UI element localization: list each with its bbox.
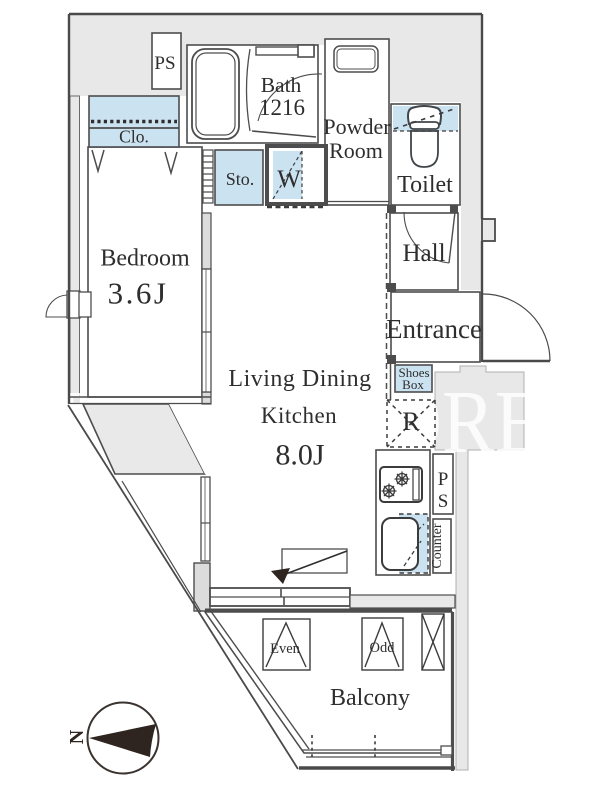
- svg-text:Sto.: Sto.: [226, 169, 255, 189]
- svg-text:3.6J: 3.6J: [108, 276, 169, 311]
- svg-text:R: R: [402, 407, 420, 436]
- svg-text:PS: PS: [154, 53, 175, 74]
- svg-text:Counter: Counter: [430, 523, 445, 568]
- svg-text:Bedroom: Bedroom: [100, 246, 190, 272]
- svg-text:8.0J: 8.0J: [275, 439, 325, 472]
- svg-text:Clo.: Clo.: [119, 127, 149, 147]
- svg-text:Living Dining: Living Dining: [228, 366, 371, 392]
- svg-text:Even: Even: [270, 641, 301, 657]
- svg-text:Balcony: Balcony: [330, 685, 410, 711]
- svg-text:P: P: [438, 469, 449, 490]
- svg-text:Toilet: Toilet: [397, 172, 453, 198]
- svg-text:Hall: Hall: [402, 240, 445, 267]
- svg-text:Bath: Bath: [261, 73, 302, 97]
- svg-text:S: S: [438, 491, 449, 512]
- svg-text:Powder: Powder: [323, 114, 391, 139]
- svg-text:Entrance: Entrance: [386, 314, 482, 344]
- svg-text:1216: 1216: [259, 95, 305, 120]
- svg-text:N: N: [66, 729, 88, 744]
- svg-text:Kitchen: Kitchen: [261, 403, 337, 428]
- svg-text:Odd: Odd: [370, 640, 396, 656]
- svg-text:W: W: [277, 166, 301, 193]
- svg-text:Box: Box: [402, 377, 424, 392]
- svg-text:Room: Room: [329, 138, 383, 163]
